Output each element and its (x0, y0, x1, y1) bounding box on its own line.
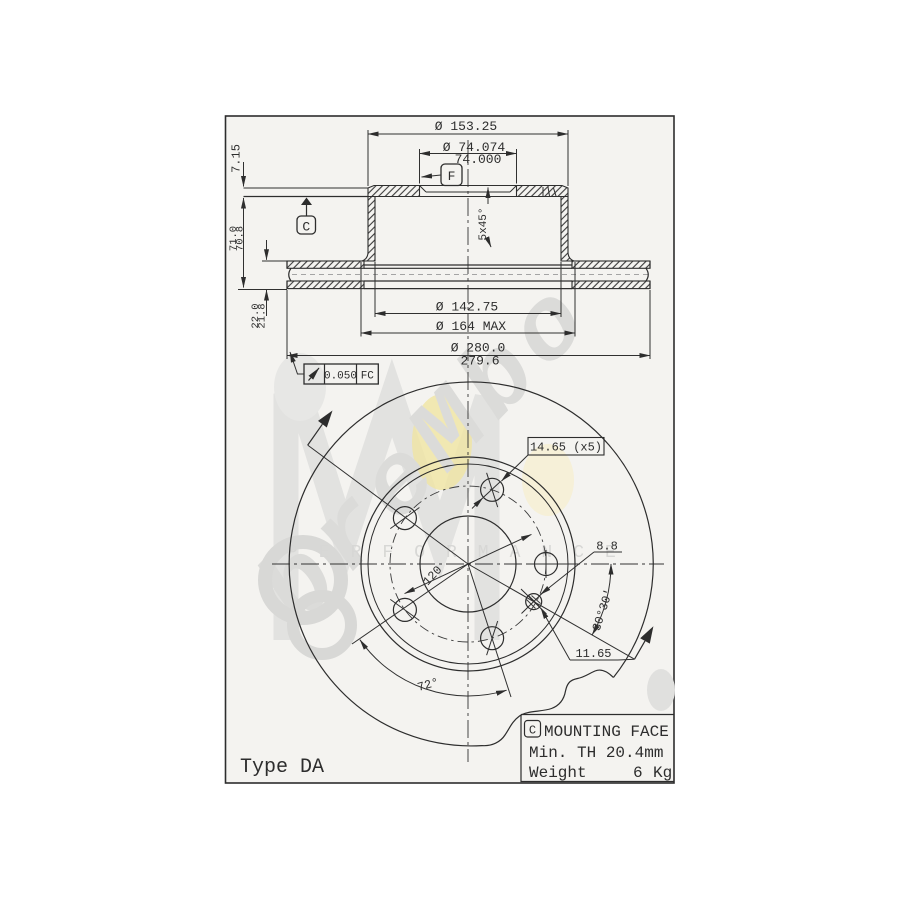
svg-text:Ø 153.25: Ø 153.25 (435, 119, 497, 134)
svg-text:6: 6 (633, 764, 643, 782)
svg-text:Type DA: Type DA (240, 756, 324, 779)
svg-text:C: C (302, 220, 310, 235)
svg-text:FC: FC (361, 371, 375, 383)
svg-text:11.65: 11.65 (575, 647, 611, 661)
svg-text:MOUNTING FACE: MOUNTING FACE (544, 723, 669, 741)
svg-text:Ø 164 MAX: Ø 164 MAX (436, 319, 506, 334)
svg-text:14.65 (x5): 14.65 (x5) (530, 441, 602, 455)
svg-text:5x45°: 5x45° (478, 207, 490, 240)
svg-text:C: C (529, 724, 536, 738)
svg-text:74.000: 74.000 (455, 152, 502, 167)
svg-text:7.15: 7.15 (230, 144, 244, 173)
svg-text:Min. TH 20.4mm: Min. TH 20.4mm (529, 744, 663, 762)
svg-text:F: F (448, 169, 456, 184)
svg-text:Kg: Kg (653, 764, 672, 782)
svg-text:Weight: Weight (529, 764, 587, 782)
svg-text:8.8: 8.8 (596, 540, 618, 554)
svg-text:70.8: 70.8 (235, 226, 247, 251)
svg-text:0.050: 0.050 (324, 371, 357, 383)
svg-text:Ø 142.75: Ø 142.75 (436, 300, 498, 315)
